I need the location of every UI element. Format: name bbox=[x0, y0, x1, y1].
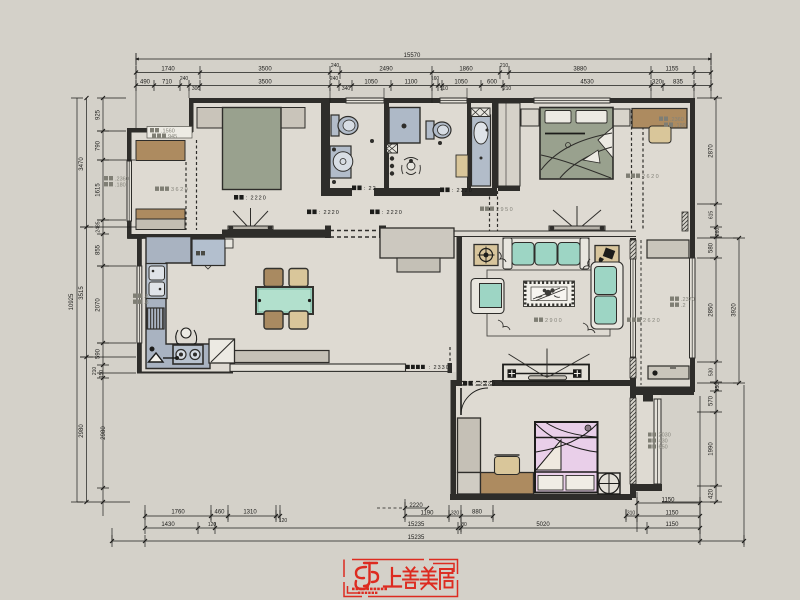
svg-text:: 2220: : 2220 bbox=[319, 210, 340, 216]
svg-text:1190: 1190 bbox=[421, 511, 435, 517]
svg-text:1760: 1760 bbox=[171, 510, 185, 516]
svg-text:160: 160 bbox=[431, 76, 440, 82]
svg-text:1050: 1050 bbox=[454, 80, 468, 86]
svg-text:: 2220: : 2220 bbox=[246, 196, 267, 202]
svg-text:2220: 2220 bbox=[409, 503, 423, 509]
svg-text:3500: 3500 bbox=[258, 80, 272, 86]
svg-text:710: 710 bbox=[162, 80, 173, 86]
svg-text:2620: 2620 bbox=[643, 318, 661, 324]
svg-text:3620: 3620 bbox=[171, 187, 189, 193]
svg-text:600: 600 bbox=[487, 80, 498, 86]
svg-text:110: 110 bbox=[440, 86, 448, 92]
svg-text:2950: 2950 bbox=[496, 207, 514, 213]
svg-text:2980: 2980 bbox=[79, 424, 85, 438]
svg-text:2490: 2490 bbox=[379, 67, 393, 73]
svg-text:300: 300 bbox=[192, 86, 201, 92]
svg-text:1615: 1615 bbox=[96, 183, 102, 197]
svg-text:150: 150 bbox=[99, 370, 105, 379]
svg-text:1150: 1150 bbox=[666, 522, 680, 528]
svg-text:420: 420 bbox=[709, 488, 715, 499]
svg-text:460: 460 bbox=[214, 510, 225, 516]
svg-text:260: 260 bbox=[715, 228, 721, 237]
svg-text:2620: 2620 bbox=[642, 174, 660, 180]
svg-text:: 2220: : 2220 bbox=[452, 188, 473, 194]
svg-text:1050: 1050 bbox=[364, 80, 378, 86]
svg-text:120: 120 bbox=[208, 522, 217, 528]
svg-text:570: 570 bbox=[709, 395, 715, 406]
svg-text:945: 945 bbox=[168, 134, 177, 140]
svg-text:120: 120 bbox=[279, 518, 288, 524]
svg-text:1150: 1150 bbox=[666, 511, 680, 517]
svg-text:3470: 3470 bbox=[79, 157, 85, 171]
svg-text:1990: 1990 bbox=[709, 442, 715, 456]
svg-text:.180: .180 bbox=[115, 183, 126, 189]
svg-text:2900: 2900 bbox=[545, 318, 563, 324]
svg-text:210: 210 bbox=[503, 86, 512, 92]
svg-text:4530: 4530 bbox=[580, 80, 594, 86]
svg-text:240: 240 bbox=[331, 63, 340, 69]
svg-text:2870: 2870 bbox=[709, 144, 715, 158]
svg-text:790: 790 bbox=[96, 140, 102, 151]
svg-text:1310: 1310 bbox=[243, 510, 257, 516]
svg-text:2070: 2070 bbox=[96, 298, 102, 312]
svg-text:880: 880 bbox=[472, 510, 483, 516]
svg-text:240: 240 bbox=[180, 76, 189, 82]
svg-text:310: 310 bbox=[627, 511, 636, 517]
svg-text:210: 210 bbox=[500, 63, 509, 69]
svg-text:10925: 10925 bbox=[69, 293, 75, 310]
svg-text:1155: 1155 bbox=[666, 67, 680, 73]
svg-text:15235: 15235 bbox=[408, 522, 425, 528]
svg-text:240: 240 bbox=[330, 76, 339, 82]
svg-text:2980: 2980 bbox=[101, 426, 107, 440]
svg-text:: 2220: : 2220 bbox=[382, 210, 403, 216]
svg-text:1740: 1740 bbox=[161, 67, 175, 73]
svg-text:320: 320 bbox=[652, 80, 663, 86]
svg-text:15570: 15570 bbox=[404, 53, 421, 59]
svg-text:1860: 1860 bbox=[459, 67, 473, 73]
svg-text:835: 835 bbox=[673, 80, 684, 86]
svg-text:615: 615 bbox=[709, 211, 715, 220]
svg-text:490: 490 bbox=[140, 80, 151, 86]
svg-text:925: 925 bbox=[96, 109, 102, 120]
svg-text:530: 530 bbox=[709, 368, 715, 377]
svg-text:855: 855 bbox=[96, 244, 102, 255]
svg-text:.8: .8 bbox=[144, 300, 149, 306]
svg-text:15235: 15235 bbox=[408, 535, 425, 541]
svg-text:3920: 3920 bbox=[732, 303, 738, 317]
svg-text:3515: 3515 bbox=[79, 286, 85, 300]
svg-text:.650: .650 bbox=[657, 445, 668, 451]
svg-text:580: 580 bbox=[709, 242, 715, 253]
svg-text:: 22: : 22 bbox=[364, 186, 377, 192]
svg-text:590: 590 bbox=[96, 348, 102, 359]
svg-text:1100: 1100 bbox=[405, 80, 419, 86]
svg-text:210: 210 bbox=[92, 367, 98, 376]
svg-text:: 2220: : 2220 bbox=[475, 382, 496, 388]
svg-text:250: 250 bbox=[715, 383, 721, 392]
svg-text:340: 340 bbox=[342, 86, 351, 92]
svg-text:5020: 5020 bbox=[536, 522, 550, 528]
svg-text:.2: .2 bbox=[681, 303, 686, 309]
svg-text:1430: 1430 bbox=[161, 522, 175, 528]
svg-text:2850: 2850 bbox=[709, 303, 715, 317]
svg-text:2485: 2485 bbox=[96, 221, 102, 232]
svg-text:3500: 3500 bbox=[258, 67, 272, 73]
svg-text:: 2330: : 2330 bbox=[429, 365, 450, 371]
svg-text:1150: 1150 bbox=[662, 498, 676, 504]
svg-text:80: 80 bbox=[461, 522, 467, 528]
svg-text:3880: 3880 bbox=[573, 67, 587, 73]
svg-text:320: 320 bbox=[451, 511, 460, 517]
svg-text:.180: .180 bbox=[675, 123, 686, 129]
